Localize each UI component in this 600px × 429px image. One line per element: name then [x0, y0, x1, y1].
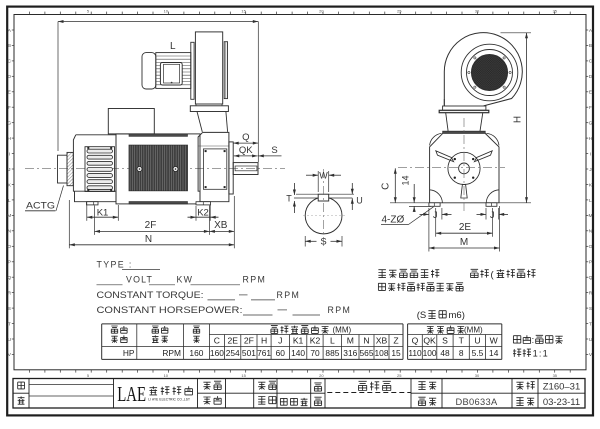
- svg-text:110: 110: [408, 348, 422, 358]
- svg-text:VOLT: VOLT: [126, 275, 153, 285]
- svg-text:F: F: [8, 105, 11, 111]
- svg-text:LI AYE ELECTRIC CO.,LST: LI AYE ELECTRIC CO.,LST: [148, 397, 190, 401]
- svg-text:J: J: [433, 210, 438, 220]
- svg-text:565: 565: [360, 348, 374, 358]
- svg-text:KW: KW: [177, 275, 194, 285]
- svg-text:15: 15: [241, 373, 246, 378]
- svg-text:B: B: [8, 43, 11, 49]
- svg-text:Z: Z: [393, 336, 398, 346]
- svg-text:T: T: [8, 321, 11, 327]
- svg-text:K1: K1: [97, 207, 109, 218]
- svg-text:15: 15: [391, 348, 401, 358]
- svg-text:2F: 2F: [244, 336, 254, 346]
- svg-text:TYPE :: TYPE :: [97, 259, 133, 269]
- svg-text:C: C: [381, 183, 392, 190]
- svg-text:P: P: [8, 260, 11, 266]
- svg-text:U: U: [474, 336, 480, 346]
- svg-text:(MM): (MM): [464, 326, 483, 335]
- svg-text:S: S: [8, 306, 11, 312]
- svg-text:48: 48: [440, 348, 450, 358]
- svg-text:O: O: [589, 244, 593, 250]
- svg-text:60: 60: [276, 348, 286, 358]
- svg-text:L: L: [170, 41, 176, 52]
- svg-text:2E: 2E: [227, 336, 238, 346]
- svg-text:10: 10: [164, 8, 169, 13]
- svg-text:HP: HP: [123, 348, 135, 358]
- svg-text:K1: K1: [293, 336, 304, 346]
- svg-text:M: M: [460, 237, 468, 248]
- svg-text:20: 20: [319, 8, 324, 13]
- svg-text:L: L: [8, 198, 11, 204]
- svg-text:5.5: 5.5: [472, 348, 484, 358]
- svg-text:30: 30: [475, 8, 480, 13]
- svg-text:5: 5: [87, 8, 90, 13]
- svg-text:Q: Q: [7, 275, 11, 281]
- svg-text:Q: Q: [412, 336, 419, 346]
- svg-text:2E: 2E: [459, 222, 472, 233]
- svg-text:N: N: [8, 229, 12, 235]
- svg-text:G: G: [7, 121, 11, 127]
- svg-text:W: W: [490, 336, 499, 346]
- svg-text:RPM: RPM: [162, 348, 181, 358]
- svg-text:RPM: RPM: [243, 275, 267, 285]
- svg-text:Q: Q: [589, 275, 593, 281]
- svg-text:K: K: [8, 182, 12, 188]
- svg-text:03-23-11: 03-23-11: [543, 397, 580, 408]
- svg-text:761: 761: [257, 348, 271, 358]
- svg-text:T: T: [459, 336, 465, 346]
- svg-text:160: 160: [189, 348, 203, 358]
- svg-text:I: I: [590, 151, 591, 157]
- svg-text:O: O: [7, 244, 11, 250]
- svg-text:T: T: [286, 194, 292, 204]
- svg-text:E: E: [589, 90, 592, 96]
- svg-text:U: U: [8, 337, 12, 343]
- svg-text:P: P: [589, 260, 592, 266]
- svg-text:S: S: [589, 306, 592, 312]
- svg-text:N: N: [589, 229, 593, 235]
- svg-text:S: S: [442, 336, 448, 346]
- svg-text:I: I: [9, 151, 10, 157]
- svg-text:D: D: [8, 74, 12, 80]
- svg-text:108: 108: [375, 348, 389, 358]
- svg-text:885: 885: [325, 348, 339, 358]
- svg-text:20: 20: [319, 373, 324, 378]
- svg-text:70: 70: [310, 348, 320, 358]
- svg-text:K2: K2: [310, 336, 321, 346]
- svg-text:100: 100: [423, 348, 437, 358]
- svg-text:ACTG: ACTG: [26, 201, 55, 212]
- svg-text:U: U: [589, 337, 593, 343]
- svg-text:N: N: [363, 336, 369, 346]
- svg-text:U: U: [356, 196, 363, 206]
- svg-text:L: L: [330, 336, 335, 346]
- svg-text:25: 25: [397, 8, 402, 13]
- svg-text:C: C: [8, 59, 12, 65]
- svg-text:35: 35: [553, 8, 558, 13]
- svg-text:RPM: RPM: [277, 290, 301, 300]
- svg-text:8: 8: [459, 348, 464, 358]
- svg-text:G: G: [589, 121, 593, 127]
- svg-text:CONSTANT HORSEPOWER:: CONSTANT HORSEPOWER:: [97, 305, 243, 315]
- svg-text:J: J: [278, 336, 282, 346]
- svg-text:W: W: [319, 171, 328, 181]
- svg-text:M: M: [347, 336, 354, 346]
- svg-text:N: N: [145, 234, 152, 245]
- svg-text:14: 14: [489, 348, 499, 358]
- svg-text:R: R: [8, 290, 12, 296]
- svg-text:B: B: [589, 43, 592, 49]
- svg-text:14: 14: [401, 175, 411, 185]
- svg-text:Z160–31: Z160–31: [543, 381, 581, 392]
- svg-text:15: 15: [241, 8, 246, 13]
- svg-text:(S: (S: [417, 310, 427, 321]
- svg-text:C: C: [214, 336, 220, 346]
- svg-text:H: H: [261, 336, 267, 346]
- svg-text:Q: Q: [242, 132, 249, 143]
- svg-text:V: V: [8, 352, 12, 358]
- svg-text:J: J: [8, 167, 11, 173]
- svg-text:A: A: [8, 28, 12, 34]
- svg-text:M: M: [589, 213, 593, 219]
- svg-text:QK: QK: [423, 336, 436, 346]
- svg-text:35: 35: [553, 373, 558, 378]
- svg-text:25: 25: [397, 373, 402, 378]
- svg-text:(: (: [491, 269, 495, 280]
- svg-text:XB: XB: [376, 336, 388, 346]
- svg-text:H: H: [8, 136, 12, 142]
- svg-text:H: H: [589, 136, 593, 142]
- svg-text:2F: 2F: [145, 220, 157, 231]
- svg-text:m6): m6): [449, 310, 465, 321]
- svg-text:J: J: [589, 167, 592, 173]
- svg-text:H: H: [513, 116, 524, 123]
- svg-text:10: 10: [164, 373, 169, 378]
- svg-text:(MM): (MM): [333, 326, 352, 335]
- svg-text:LAE: LAE: [117, 382, 146, 406]
- svg-text:RPM: RPM: [328, 305, 352, 315]
- svg-text:S: S: [271, 145, 277, 156]
- svg-text:CONSTANT TORQUE:: CONSTANT TORQUE:: [97, 290, 204, 300]
- svg-text:S: S: [320, 236, 326, 247]
- svg-text:DB0633A: DB0633A: [456, 397, 498, 407]
- svg-text:M: M: [7, 213, 11, 219]
- svg-text:T: T: [589, 321, 592, 327]
- svg-text:30: 30: [475, 373, 480, 378]
- svg-text:140: 140: [291, 348, 305, 358]
- svg-text:316: 316: [343, 348, 357, 358]
- svg-text:R: R: [589, 290, 593, 296]
- svg-text:C: C: [589, 59, 593, 65]
- svg-text:F: F: [589, 105, 592, 111]
- svg-text:XB: XB: [214, 220, 228, 231]
- svg-text:4-ZØ: 4-ZØ: [382, 215, 405, 226]
- svg-text:L: L: [589, 198, 592, 204]
- svg-text:5: 5: [87, 373, 90, 378]
- svg-text:501: 501: [242, 348, 256, 358]
- svg-text:QK: QK: [239, 145, 253, 156]
- svg-text:160: 160: [210, 348, 224, 358]
- svg-text:254: 254: [226, 348, 240, 358]
- svg-text::: :: [532, 335, 535, 345]
- svg-text:1:1: 1:1: [533, 349, 549, 359]
- svg-text:E: E: [8, 90, 11, 96]
- svg-text:K2: K2: [197, 207, 209, 218]
- svg-text:D: D: [589, 74, 593, 80]
